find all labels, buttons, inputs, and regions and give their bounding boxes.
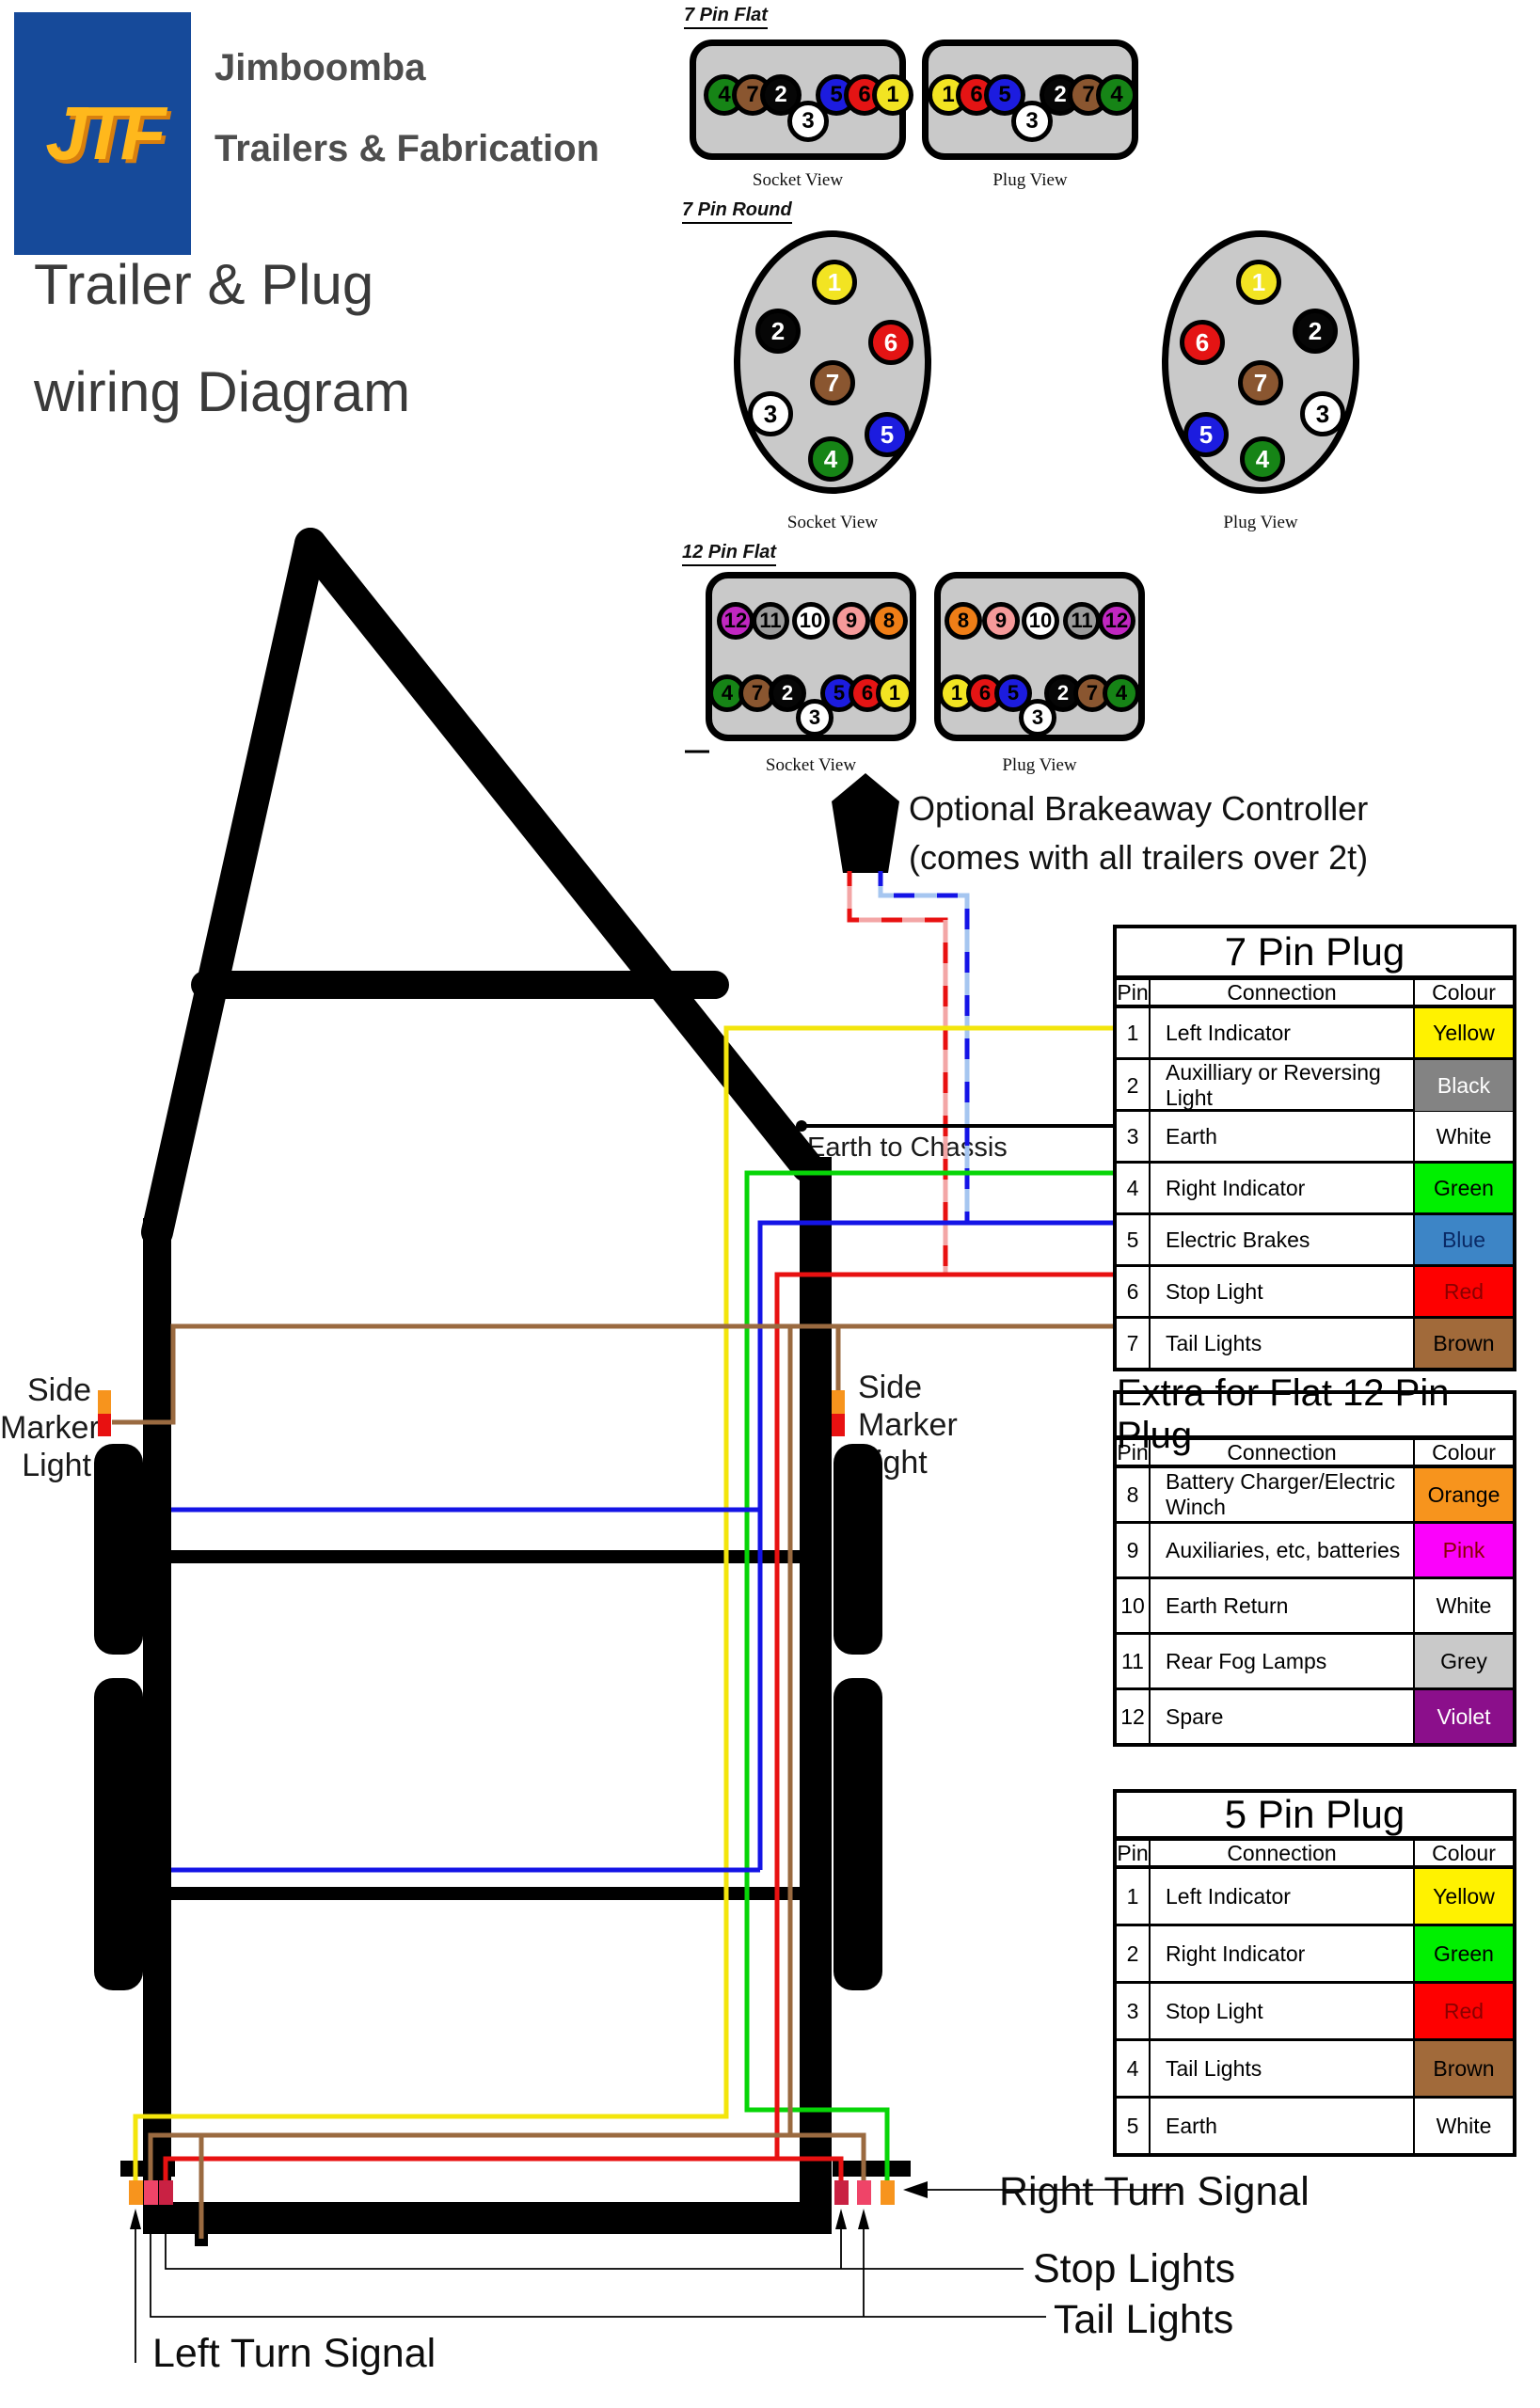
rear-lights [129,2180,895,2205]
right-tail-light [857,2180,871,2205]
wheel-left-rear [94,1678,143,1990]
arrowhead-up [835,2209,847,2229]
arrowhead-up [130,2209,141,2229]
wheel-left-front [94,1444,143,1655]
left-stop-light [159,2180,173,2205]
brakeaway-controller-icon [832,773,899,873]
trailer-wiring-drawing [0,0,1540,2408]
wheel-right-rear [834,1678,882,1990]
right-turn-light [881,2180,895,2205]
left-turn-light [129,2180,143,2205]
side-marker-light-left [98,1390,111,1414]
bumper-right [833,2161,911,2177]
side-marker-light-left-red [98,1414,111,1436]
side-marker-light-right [832,1390,845,1414]
tail-lights-callout-line [151,2227,1046,2317]
left-tail-light [144,2180,158,2205]
wire-blue-electric-brakes [171,1223,1113,1870]
earth-connection-dot [796,1120,807,1132]
brakeaway-red-wire-dash [849,886,945,1275]
wire-red-stop-light [166,1275,1113,2184]
side-marker-light-right-red [832,1414,845,1436]
right-stop-light [834,2180,849,2205]
brakeaway-red-wire [849,871,945,1275]
wire-brown-tail-lights [112,1326,1113,2239]
wiring-diagram-page: JTF Jimboomba Trailers & Fabrication Tra… [0,0,1540,2408]
arrowhead-up [858,2209,869,2229]
wheel-right-front [834,1444,882,1655]
brakeaway-blue-wire [881,871,967,1223]
right-turn-arrowhead [903,2181,928,2198]
side-marker-lights [98,1390,845,1436]
